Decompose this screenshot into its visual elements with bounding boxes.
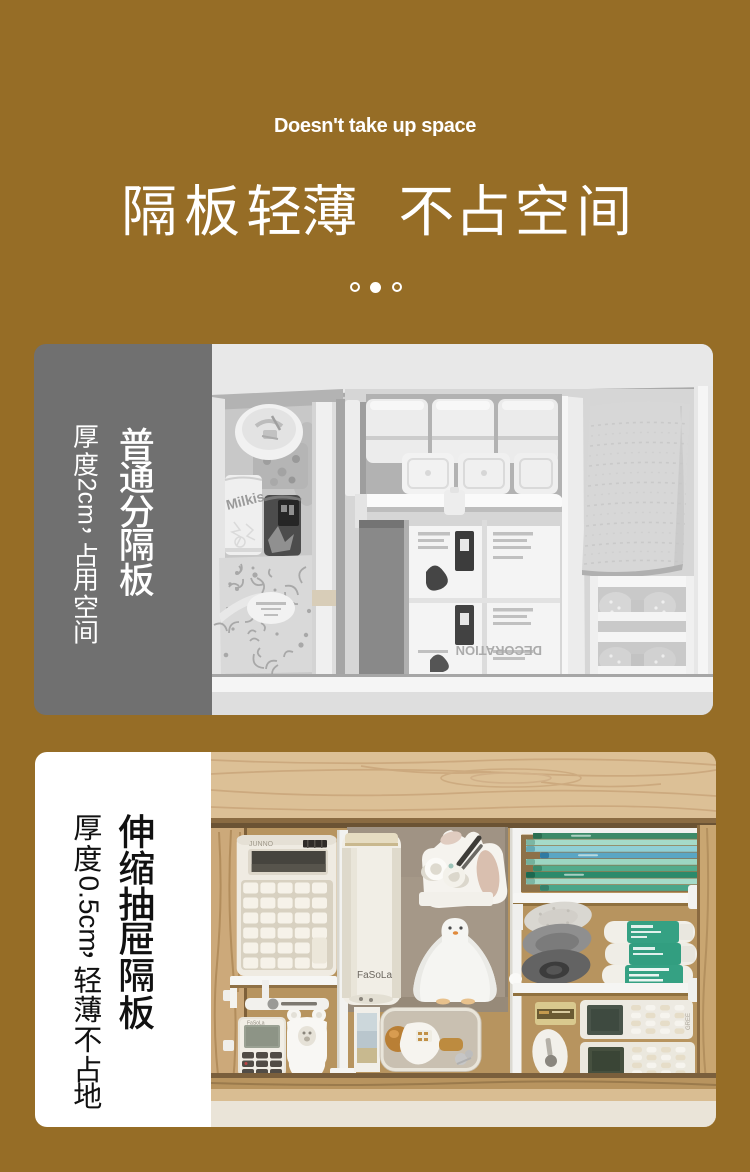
svg-text:GREE: GREE xyxy=(686,1013,692,1030)
svg-text:FaSoLa: FaSoLa xyxy=(357,970,392,981)
svg-text:DECORATION: DECORATION xyxy=(456,643,542,658)
svg-text:JUNNO: JUNNO xyxy=(249,841,274,848)
